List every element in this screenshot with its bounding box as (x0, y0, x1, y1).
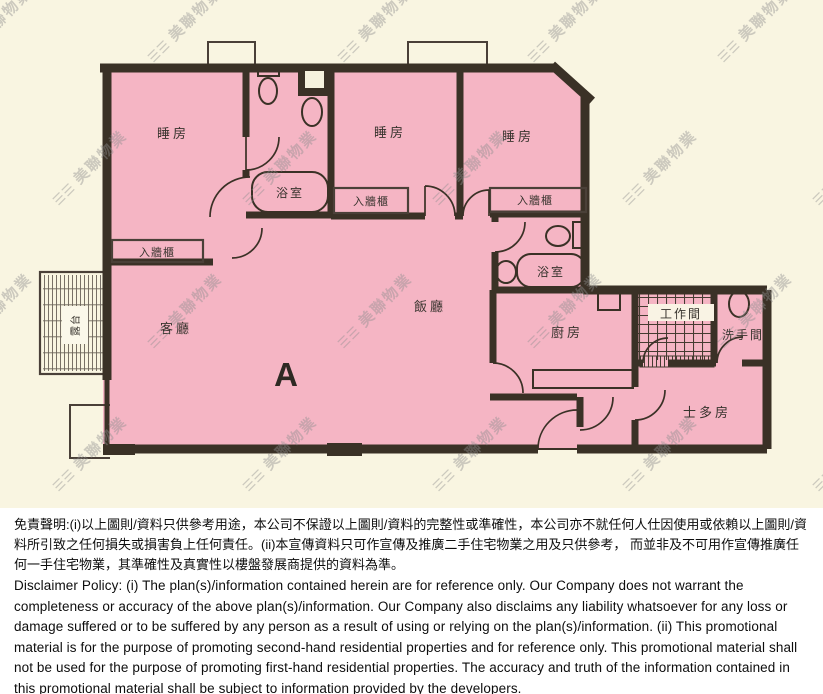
workroom-hatch (638, 294, 712, 360)
room-label-toilet: 洗手間 (722, 328, 764, 342)
room-label-bathroom-2: 浴室 (537, 264, 565, 279)
wall-pillar (327, 443, 362, 456)
room-label-bathroom-1: 浴室 (276, 185, 304, 200)
disclaimer-section: 免責聲明:(i)以上圖則/資料只供參考用途，本公司不保證以上圖則/資料的完整性或… (0, 508, 823, 694)
room-label-workroom: 工作間 (660, 307, 702, 321)
room-label-bedroom-2: 睡房 (374, 125, 406, 140)
scanned-floorplan-page: 露台 (0, 0, 823, 694)
room-label-bedroom-3: 睡房 (502, 129, 534, 144)
disclaimer-chinese: 免責聲明:(i)以上圖則/資料只供參考用途，本公司不保證以上圖則/資料的完整性或… (14, 515, 809, 575)
room-label-dining-room: 飯廳 (414, 299, 446, 314)
bay-window-middle (408, 42, 487, 66)
room-label-balcony: 露台 (69, 314, 82, 336)
room-label-closet-2: 入牆櫃 (353, 194, 389, 208)
room-label-bedroom-1: 睡房 (157, 126, 189, 141)
unit-letter: A (274, 356, 298, 393)
duct-box-core (305, 71, 324, 88)
room-label-living-room: 客廳 (160, 321, 192, 336)
floor-plan: 露台 (0, 0, 823, 508)
room-label-kitchen: 廚房 (551, 325, 583, 340)
room-label-closet-3: 入牆櫃 (517, 193, 553, 207)
wall-pillar-left (103, 444, 135, 455)
room-label-storeroom: 士多房 (683, 405, 731, 420)
disclaimer-english: Disclaimer Policy: (i) The plan(s)/infor… (14, 576, 809, 694)
floor-plan-area: 露台 (0, 0, 823, 508)
balcony: 露台 (40, 272, 110, 374)
room-label-closet-1: 入牆櫃 (139, 245, 175, 259)
bay-window-left (208, 42, 255, 66)
